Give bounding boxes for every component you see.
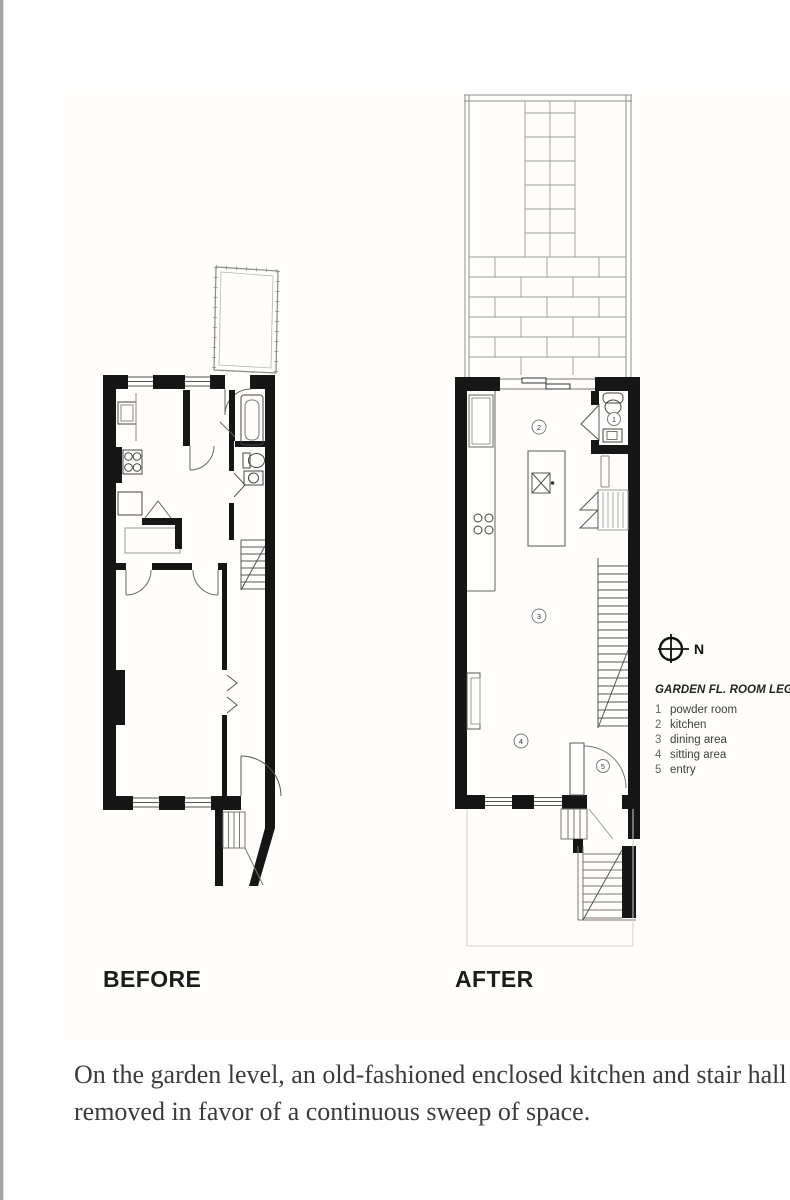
marker-sitting-area: 4 <box>519 737 523 746</box>
caption: On the garden level, an old-fashioned en… <box>74 1056 790 1130</box>
bathroom-fixtures <box>241 395 265 485</box>
before-floor-plan <box>95 245 295 890</box>
closet <box>580 490 628 530</box>
kitchen-counter <box>467 391 495 591</box>
patio-walkway <box>525 101 575 257</box>
caption-line-2: removed in favor of a continuous sweep o… <box>74 1093 790 1130</box>
after-label: AFTER <box>455 966 534 993</box>
duct-chase <box>601 456 609 487</box>
legend-item-label: dining area <box>670 733 727 748</box>
north-label: N <box>694 641 705 657</box>
legend-item-number: 4 <box>655 748 670 763</box>
page-left-edge <box>0 0 4 1200</box>
legend-title: GARDEN FL. ROOM LEGEND <box>655 684 790 696</box>
north-compass: N <box>655 633 705 665</box>
entry <box>570 743 626 839</box>
legend-item: 5 entry <box>655 763 790 778</box>
stairs <box>241 540 265 590</box>
kitchen-fixtures <box>118 393 180 553</box>
legend-rows: 1 powder room 2 kitchen 3 dining area 4 … <box>655 703 790 778</box>
marker-powder-room: 1 <box>612 417 616 424</box>
legend-item-label: powder room <box>670 703 737 718</box>
before-label: BEFORE <box>103 966 201 993</box>
sliding-door <box>500 378 595 389</box>
legend-item-number: 2 <box>655 718 670 733</box>
legend-item: 1 powder room <box>655 703 790 718</box>
room-legend: GARDEN FL. ROOM LEGEND 1 powder room 2 k… <box>655 684 790 778</box>
legend-item: 2 kitchen <box>655 718 790 733</box>
legend-item-label: kitchen <box>670 718 706 733</box>
fireplace <box>467 673 480 729</box>
patio-bricks <box>469 257 626 375</box>
windows <box>128 377 211 807</box>
stairs <box>598 558 628 728</box>
rear-porch <box>214 267 278 373</box>
after-floor-plan: 1 2 3 4 5 <box>450 88 650 958</box>
legend-item-label: entry <box>670 763 696 778</box>
marker-kitchen: 2 <box>537 423 541 432</box>
front-stoop <box>561 809 636 920</box>
legend-item-number: 3 <box>655 733 670 748</box>
legend-item-label: sitting area <box>670 748 726 763</box>
kitchen-island <box>528 451 565 546</box>
legend-item: 4 sitting area <box>655 748 790 763</box>
legend-item-number: 5 <box>655 763 670 778</box>
article-page: 1 2 3 4 5 N GARDEN FL. ROOM LEGEND 1 pow… <box>0 0 790 1200</box>
legend-item-number: 1 <box>655 703 670 718</box>
legend-item: 3 dining area <box>655 733 790 748</box>
marker-entry: 5 <box>601 764 605 771</box>
caption-line-1: On the garden level, an old-fashioned en… <box>74 1056 790 1093</box>
marker-dining-area: 3 <box>537 612 541 621</box>
north-arrow-icon <box>655 633 691 665</box>
